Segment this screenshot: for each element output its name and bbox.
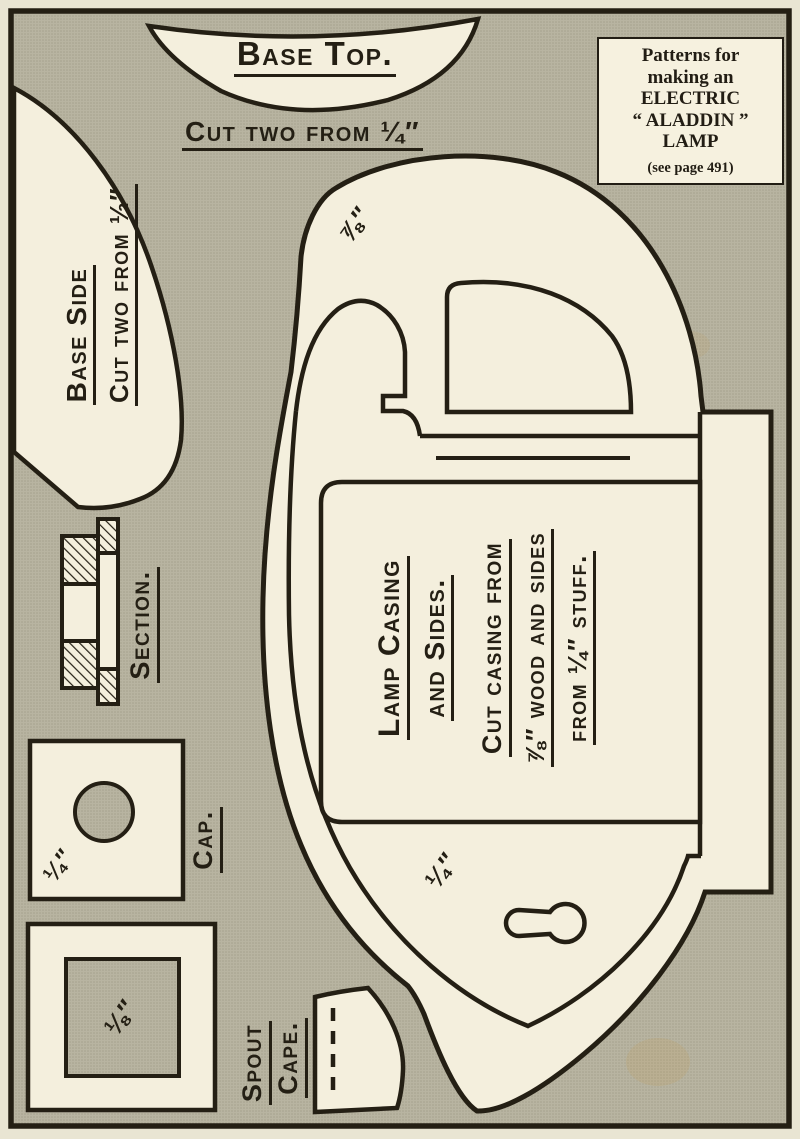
section-label-text: Section. — [126, 567, 159, 682]
spout-word1-text: Spout — [238, 1021, 271, 1105]
scanned-pattern-page: Base Top. Cut two from ¼″ Patterns for m… — [0, 0, 800, 1139]
base-top-cut-label: Cut two from ¼″ — [150, 112, 455, 156]
stain — [626, 1038, 690, 1086]
lamp-casing-label-block: Lamp Casing and Sides. Cut casing from ⅞… — [353, 485, 617, 811]
info-line: making an — [647, 67, 733, 89]
spout-word2-text: Cape. — [274, 1018, 307, 1098]
lamp-note-line1: Cut casing from — [478, 539, 511, 757]
section-drawing — [62, 519, 118, 704]
lamp-title-line1: Lamp Casing — [374, 556, 411, 740]
keyhole-slot — [506, 904, 584, 942]
corner-info-box: Patterns for making an ELECTRIC “ ALADDI… — [597, 37, 784, 185]
info-line: LAMP — [663, 131, 719, 153]
info-page-ref: (see page 491) — [647, 160, 733, 177]
cap-label: Cap. — [188, 787, 224, 893]
cap-label-text: Cap. — [189, 807, 222, 872]
info-line: Patterns for — [642, 45, 740, 67]
lamp-note-line2: ⅞″ wood and sides — [522, 529, 554, 767]
spout-label-word2: Cape. — [274, 986, 308, 1130]
spout-label-word1: Spout — [238, 991, 272, 1135]
base-side-label: Base Side — [62, 265, 96, 406]
info-line: ELECTRIC — [641, 88, 740, 110]
base-side-cut-label: Cut two from ½″ — [106, 184, 138, 406]
base-side-label-block: Base Side Cut two from ½″ — [40, 135, 160, 485]
base-top-label: Base Top. — [180, 34, 450, 80]
base-top-cut-label-text: Cut two from ¼″ — [182, 117, 423, 151]
base-top-label-text: Base Top. — [234, 37, 396, 77]
lamp-title-line2: and Sides. — [420, 575, 454, 720]
section-label: Section. — [124, 544, 162, 706]
info-line: “ ALADDIN ” — [632, 110, 748, 132]
lamp-note-line3: from ¼″ stuff. — [564, 551, 596, 745]
cap-hole — [75, 783, 133, 841]
